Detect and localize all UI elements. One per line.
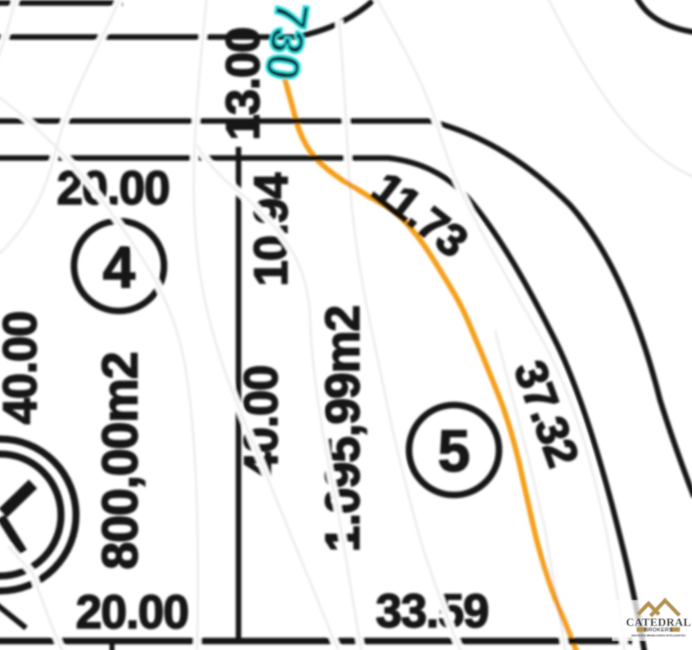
svg-text:33.59: 33.59 bbox=[376, 584, 489, 637]
svg-text:800,00m2: 800,00m2 bbox=[92, 352, 148, 569]
svg-text:10.94: 10.94 bbox=[244, 173, 297, 286]
svg-text:5: 5 bbox=[438, 419, 470, 484]
svg-text:BROKERS: BROKERS bbox=[644, 628, 673, 634]
svg-text:20.00: 20.00 bbox=[76, 585, 189, 638]
svg-text:NEGOCIOS IMOBILIARIOS INTELIGE: NEGOCIOS IMOBILIARIOS INTELIGENTES bbox=[631, 633, 685, 637]
svg-text:40.00: 40.00 bbox=[0, 312, 46, 425]
